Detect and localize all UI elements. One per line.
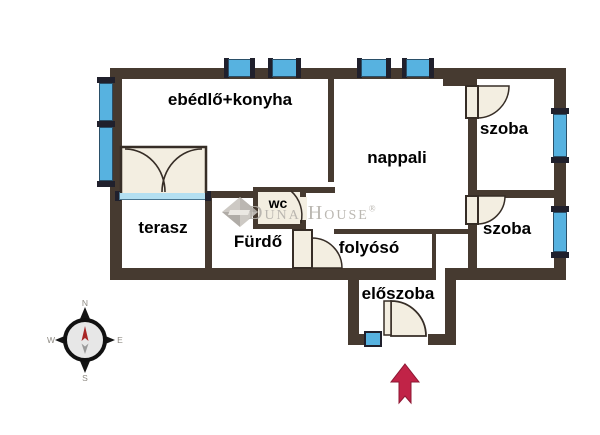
sill-cap: [205, 191, 211, 201]
window-cap: [386, 58, 391, 78]
compass-rose-icon: N E S W: [47, 298, 123, 383]
room-label-szoba-lower: szoba: [483, 219, 531, 239]
wall-folyoso-top: [334, 229, 468, 234]
wall-szoba-divider: [468, 224, 477, 268]
watermark-text: Duna House: [248, 202, 369, 224]
room-label-terasz: terasz: [138, 218, 187, 238]
room-label-furdo: Fürdő: [234, 232, 282, 252]
compass-w-label: W: [47, 335, 55, 345]
room-label-ebedlo-konyha: ebédlő+konyha: [168, 90, 292, 110]
window: [406, 59, 430, 77]
room-label-eloszoba: előszoba: [362, 284, 435, 304]
wall-bottom: [110, 268, 436, 280]
window-cap: [551, 252, 569, 258]
terrace-door-sill: [119, 192, 207, 200]
wall-stub-wc: [302, 187, 335, 193]
window: [364, 331, 382, 347]
window-cap: [250, 58, 255, 78]
wall-ebedlo-furdo: [205, 191, 253, 198]
room-label-folyoso: folyósó: [339, 238, 399, 258]
window: [99, 127, 113, 181]
furdo-door: [293, 230, 342, 268]
window-cap: [97, 181, 115, 187]
wall-ebedlo-nappali: [328, 79, 334, 182]
compass-e-label: E: [117, 335, 123, 345]
room-label-wc: wc: [269, 195, 288, 211]
window: [553, 114, 567, 157]
window: [553, 212, 567, 252]
compass-s-label: S: [82, 373, 88, 383]
entry-door: [384, 301, 426, 336]
wall-eloszoba-bottom: [348, 334, 365, 345]
floor-plan: N E S W Duna House® ebédlő+konyha nappal…: [0, 0, 600, 435]
french-double-door: [121, 146, 206, 193]
wall-terasz-furdo: [205, 191, 212, 268]
wall-bottom: [452, 268, 566, 280]
szoba-upper-door: [466, 86, 509, 118]
wall-top: [110, 68, 566, 79]
watermark: Duna House®: [248, 202, 376, 225]
compass-n-label: N: [82, 298, 88, 308]
window: [99, 83, 113, 121]
window-cap: [429, 58, 434, 78]
watermark-reg: ®: [369, 203, 376, 213]
entrance-arrow-icon: [391, 364, 419, 403]
wall-szoba-divider: [468, 118, 477, 196]
wall-szoba-divider: [468, 79, 477, 86]
window: [272, 59, 297, 77]
window-cap: [296, 58, 301, 78]
room-label-szoba-upper: szoba: [480, 119, 528, 139]
wall-folyoso-thin: [432, 234, 436, 268]
wall-eloszoba-bottom: [428, 334, 456, 345]
window: [361, 59, 387, 77]
window-cap: [551, 157, 569, 163]
room-label-nappali: nappali: [367, 148, 427, 168]
window: [228, 59, 251, 77]
wall-between-szobas: [477, 190, 554, 198]
